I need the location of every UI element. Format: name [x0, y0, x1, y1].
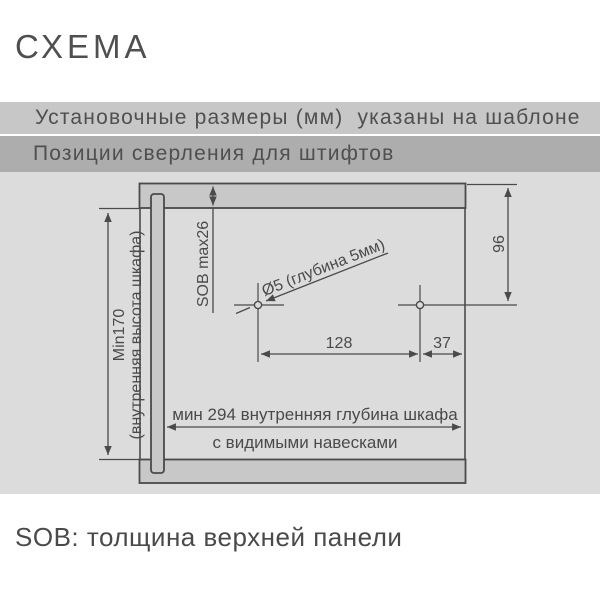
dim-hole-spacing: 128 37	[261, 335, 462, 354]
dim-internal-height-caption: (внутренняя высота шкафа)	[128, 231, 145, 440]
page-title: СХЕМА	[15, 28, 151, 66]
dim-offset-from-top: 96	[467, 185, 517, 302]
dim-offset-from-back-value: 37	[433, 335, 451, 352]
drill-hole-right	[416, 301, 423, 308]
dim-internal-depth-note: с видимыми навесками	[212, 433, 397, 452]
dim-between-holes-value: 128	[326, 335, 353, 352]
top-panel	[140, 184, 466, 209]
bottom-panel	[140, 460, 466, 484]
dim-offset-from-top-value: 96	[491, 235, 508, 253]
drill-hole-left	[254, 301, 261, 308]
cabinet-drilling-diagram: Min170 (внутренняя высота шкафа) SOB max…	[0, 172, 600, 494]
sob-definition-label: SOB: толщина верхней панели	[15, 522, 402, 553]
hole-diameter-label: Ø5 (глубина 5мм)	[260, 236, 388, 300]
diagram-svg: Min170 (внутренняя высота шкафа) SOB max…	[0, 172, 600, 494]
dim-top-panel-thickness-label: SOB max26	[195, 221, 212, 307]
dim-internal-height-value: Min170	[111, 309, 128, 362]
banner-drilling-positions: Позиции сверления для штифтов	[0, 136, 600, 172]
dim-internal-depth-label: мин 294 внутренняя глубина шкафа	[172, 405, 458, 424]
banner-installation-sizes: Установочные размеры (мм) указаны на шаб…	[0, 102, 600, 134]
front-strip-panel	[151, 194, 164, 473]
dim-internal-height: Min170 (внутренняя высота шкафа)	[99, 209, 145, 460]
dim-internal-depth: мин 294 внутренняя глубина шкафа с видим…	[167, 405, 461, 452]
